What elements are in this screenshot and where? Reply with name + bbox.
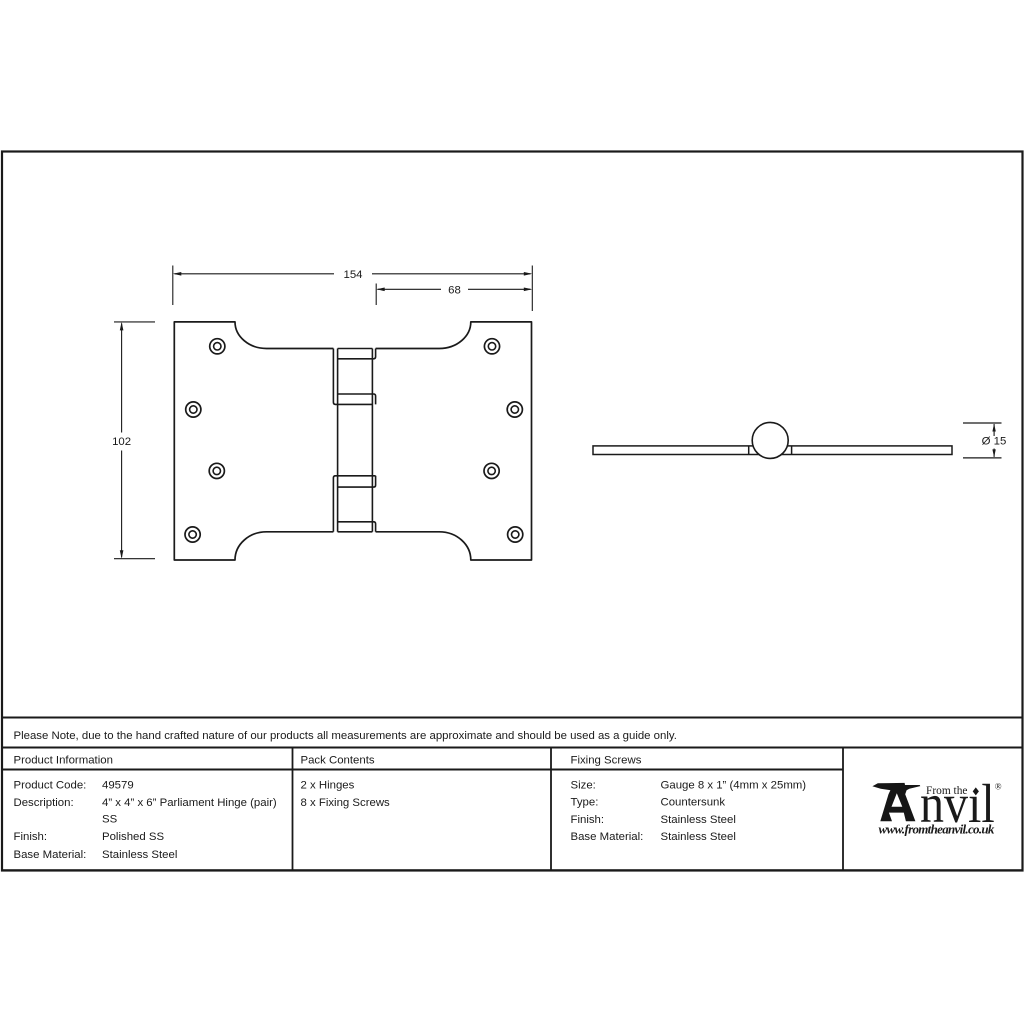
svg-text:Product Code:: Product Code:: [14, 779, 87, 791]
svg-text:Finish:: Finish:: [571, 814, 605, 826]
svg-text:www.fromtheanvil.co.uk: www.fromtheanvil.co.uk: [879, 822, 995, 837]
svg-text:102: 102: [112, 436, 131, 448]
svg-text:Pack Contents: Pack Contents: [301, 755, 375, 767]
svg-text:Product Information: Product Information: [14, 755, 113, 767]
svg-text:2 x Hinges: 2 x Hinges: [301, 779, 355, 791]
svg-text:Base Material:: Base Material:: [14, 849, 87, 861]
svg-text:Stainless Steel: Stainless Steel: [661, 814, 736, 826]
svg-text:154: 154: [343, 269, 362, 281]
svg-text:Polished SS: Polished SS: [102, 831, 164, 843]
svg-text:49579: 49579: [102, 779, 134, 791]
svg-text:Gauge 8 x 1” (4mm x 25mm): Gauge 8 x 1” (4mm x 25mm): [661, 779, 807, 791]
svg-text:®: ®: [995, 781, 1002, 791]
svg-text:Countersunk: Countersunk: [661, 797, 726, 809]
svg-text:8 x Fixing Screws: 8 x Fixing Screws: [301, 797, 391, 809]
svg-text:4” x 4” x 6” Parliament Hinge: 4” x 4” x 6” Parliament Hinge (pair): [102, 797, 277, 809]
svg-text:Finish:: Finish:: [14, 831, 48, 843]
svg-text:Type:: Type:: [571, 797, 599, 809]
svg-text:Size:: Size:: [571, 779, 596, 791]
svg-text:Ø 15: Ø 15: [982, 435, 1007, 447]
svg-text:Stainless Steel: Stainless Steel: [102, 849, 177, 861]
svg-text:SS: SS: [102, 813, 118, 825]
svg-text:Description:: Description:: [14, 797, 74, 809]
svg-text:Fixing Screws: Fixing Screws: [571, 755, 642, 767]
svg-text:68: 68: [448, 284, 461, 296]
svg-text:Base Material:: Base Material:: [571, 831, 644, 843]
svg-text:Please Note, due to the hand c: Please Note, due to the hand crafted nat…: [14, 730, 677, 742]
svg-text:Stainless Steel: Stainless Steel: [661, 831, 736, 843]
